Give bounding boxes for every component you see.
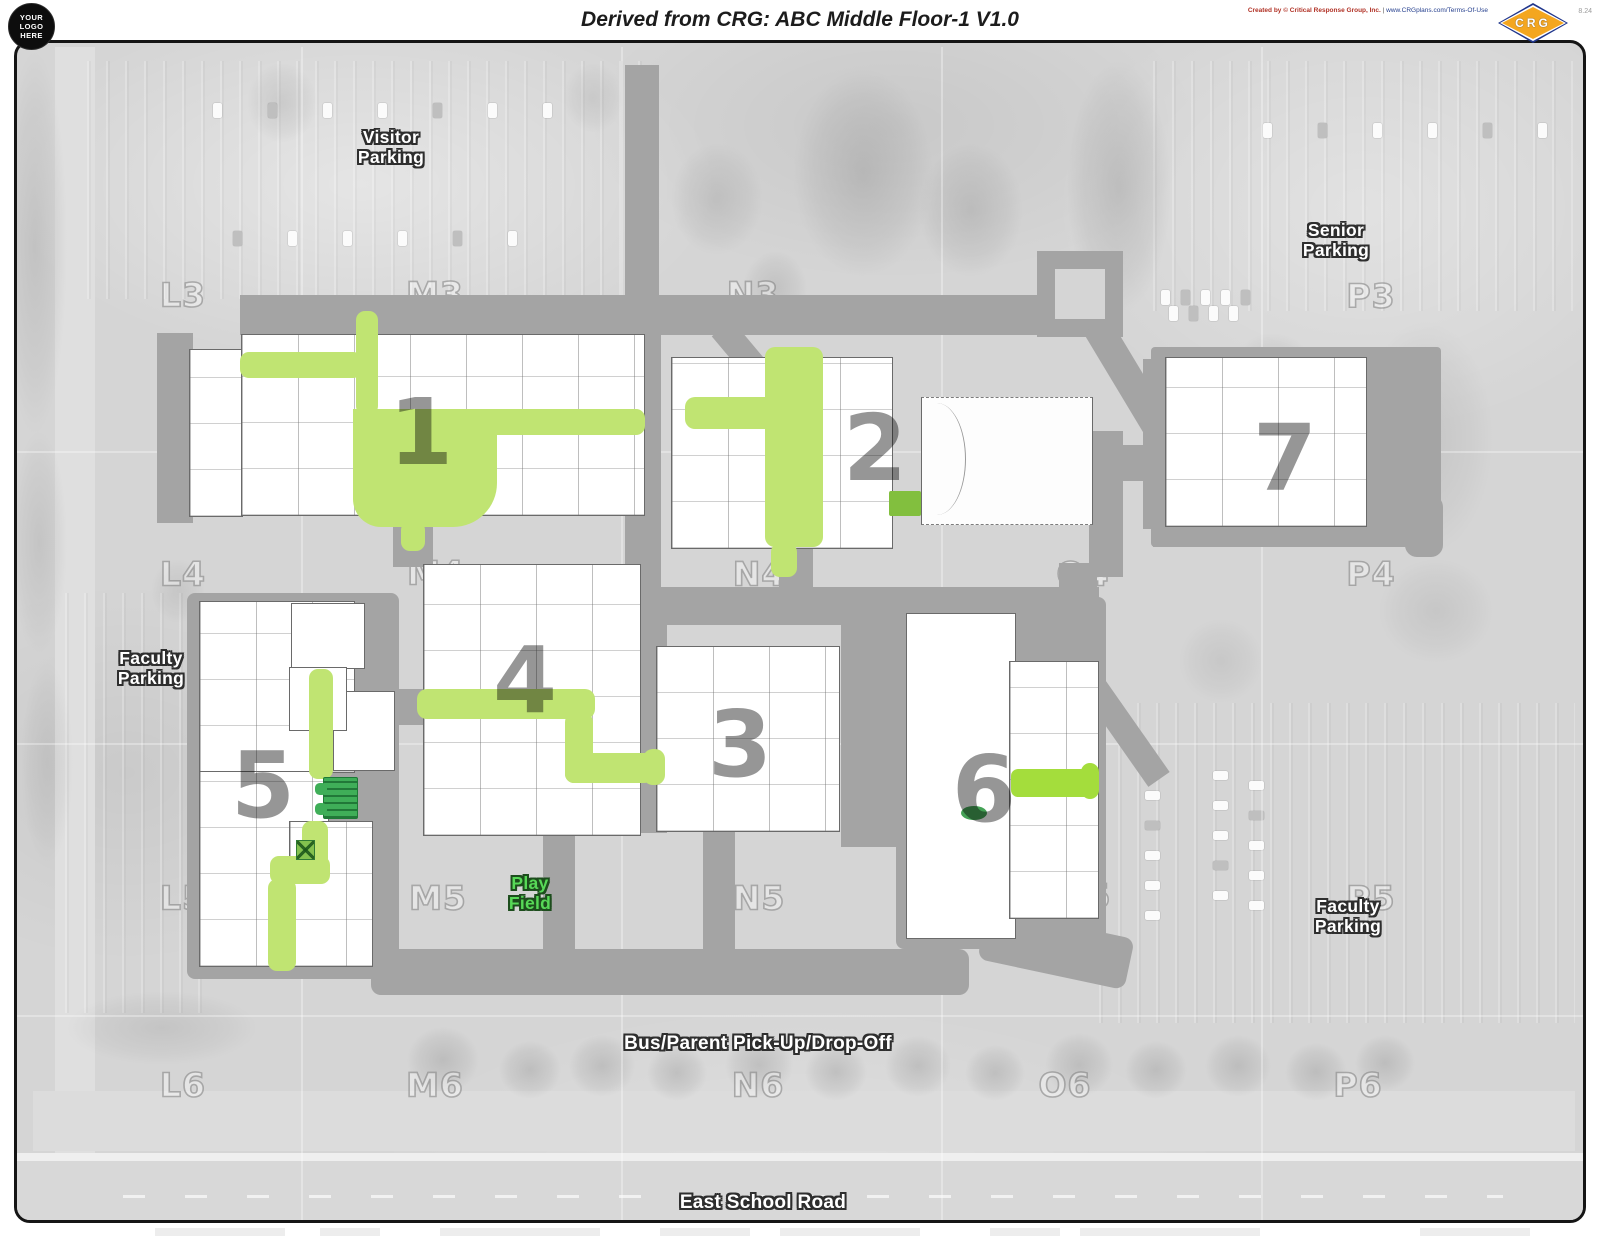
car: [1221, 290, 1230, 305]
senior-parking-line: Senior: [1303, 221, 1369, 241]
green-route: [401, 521, 425, 551]
cutoff-content-block: [320, 1228, 380, 1236]
green-route: [565, 753, 653, 783]
car: [1145, 911, 1160, 920]
crg-logo-icon: CRG: [1498, 3, 1568, 43]
grid-label-N5: N5: [733, 879, 786, 918]
play-field-line: Play: [509, 874, 551, 894]
green-route: [356, 311, 378, 415]
car: [1169, 306, 1178, 321]
cutoff-content-block: [990, 1228, 1060, 1236]
tree: [965, 1045, 1025, 1101]
corridor-segment: [625, 65, 659, 317]
logo-line: LOGO: [20, 22, 44, 31]
car: [1229, 306, 1238, 321]
stairs-landing: [315, 803, 327, 815]
visitor-parking: VisitorParking: [358, 128, 424, 168]
corridor-segment: [157, 333, 193, 523]
credit-terms-link[interactable]: www.CRGplans.com/Terms-Of-Use: [1386, 7, 1488, 14]
green-route: [268, 879, 296, 971]
parking-lot: [1099, 703, 1575, 1023]
car: [1189, 306, 1198, 321]
your-logo-placeholder-icon: YOUR LOGO HERE: [8, 3, 55, 50]
car: [1213, 861, 1228, 870]
cutoff-content-block: [155, 1228, 285, 1236]
header-bar: YOUR LOGO HERE Derived from CRG: ABC Mid…: [0, 0, 1600, 40]
logo-line: YOUR: [20, 13, 43, 22]
campus-map: L3M3N3O3P3L4M4N4O4P4L5M5N5O5P5L6M6N6O6P6…: [14, 40, 1586, 1223]
grid-label-P3: P3: [1346, 277, 1395, 316]
grid-label-O6: O6: [1038, 1066, 1091, 1105]
green-route: [309, 669, 333, 779]
building-5-label: 5: [231, 740, 295, 832]
play-field-line: Field: [509, 894, 551, 914]
faculty-parking-east-line: Parking: [1315, 917, 1381, 937]
credit-line: Created by © Critical Response Group, In…: [1248, 7, 1488, 14]
building-7-label: 7: [1253, 413, 1317, 505]
credit-created: Created by © Critical Response Group, In…: [1248, 7, 1381, 14]
tree: [919, 143, 1023, 277]
car: [1145, 851, 1160, 860]
grid-label-L4: L4: [160, 555, 206, 594]
car: [1213, 891, 1228, 900]
logo-line: HERE: [20, 31, 42, 40]
tree: [67, 991, 257, 1065]
green-route: [765, 347, 823, 547]
car: [1213, 831, 1228, 840]
car: [1161, 290, 1170, 305]
car: [1181, 290, 1190, 305]
tree: [21, 661, 73, 865]
faculty-parking-west-line: Parking: [118, 669, 184, 689]
tree: [499, 1041, 561, 1099]
grid-line: [17, 1015, 1586, 1017]
car: [1145, 791, 1160, 800]
car: [1428, 123, 1437, 138]
car: [268, 103, 277, 118]
tree: [793, 69, 933, 277]
grid-label-L3: L3: [160, 276, 206, 315]
car: [213, 103, 222, 118]
car: [398, 231, 407, 246]
building-outline: [291, 603, 365, 669]
cutoff-content-block: [780, 1228, 920, 1236]
stair-cross-icon: [296, 840, 315, 860]
page: { "header": { "logo": { "line1": "YOUR",…: [0, 0, 1600, 1237]
cutoff-content-block: [1420, 1228, 1530, 1236]
building-1-label: 1: [389, 387, 453, 479]
grid-label-P6: P6: [1333, 1066, 1382, 1105]
version-tag: 8.24: [1578, 8, 1592, 15]
bus-parent-pick-up-drop-off-line: Bus/Parent Pick-Up/Drop-Off: [624, 1033, 892, 1055]
tree: [247, 63, 317, 143]
car: [288, 231, 297, 246]
cutoff-content-block: [440, 1228, 600, 1236]
green-route: [240, 352, 362, 378]
grid-label-M5: M5: [409, 879, 467, 918]
stairs-landing: [315, 783, 327, 795]
grid-line: [1261, 47, 1263, 1223]
car: [1145, 821, 1160, 830]
cutoff-content-block: [1080, 1228, 1260, 1236]
car: [343, 231, 352, 246]
senior-parking-line: Parking: [1303, 241, 1369, 261]
car: [543, 103, 552, 118]
play-field: PlayField: [509, 874, 551, 914]
building-4-label: 4: [493, 635, 557, 727]
building-outline: [189, 349, 243, 517]
courtyard-opening: [1055, 269, 1105, 319]
crg-logo-text: CRG: [1498, 3, 1568, 43]
car: [1201, 290, 1210, 305]
car: [488, 103, 497, 118]
grid-label-P4: P4: [1346, 555, 1395, 594]
car: [1373, 123, 1382, 138]
bus-parent-pick-up-drop-off: Bus/Parent Pick-Up/Drop-Off: [624, 1033, 892, 1055]
grid-label-M6: M6: [406, 1066, 464, 1105]
tree: [14, 431, 67, 655]
car: [453, 231, 462, 246]
car: [323, 103, 332, 118]
car: [1263, 123, 1272, 138]
car: [1213, 801, 1228, 810]
car: [508, 231, 517, 246]
tree: [563, 63, 623, 133]
grid-label-N6: N6: [732, 1066, 785, 1105]
green-route: [685, 397, 815, 429]
faculty-parking-west-line: Faculty: [118, 649, 184, 669]
car: [1145, 881, 1160, 890]
visitor-parking-line: Visitor: [358, 128, 424, 148]
parking-lot: [1153, 61, 1573, 311]
grid-label-L6: L6: [160, 1066, 206, 1105]
tree: [671, 143, 763, 255]
visitor-parking-line: Parking: [358, 148, 424, 168]
tree: [1179, 619, 1263, 703]
car: [1209, 306, 1218, 321]
car: [1483, 123, 1492, 138]
car: [378, 103, 387, 118]
green-route: [643, 749, 665, 785]
corridor-segment: [703, 827, 735, 953]
corridor-segment: [371, 949, 969, 995]
building-2-label: 2: [843, 403, 907, 495]
tree: [1379, 559, 1493, 663]
page-title: Derived from CRG: ABC Middle Floor-1 V1.…: [581, 8, 1019, 32]
stairs-icon: [323, 777, 358, 819]
building-6-label: 6: [952, 744, 1016, 836]
faculty-parking-west: FacultyParking: [118, 649, 184, 689]
car: [1213, 771, 1228, 780]
car: [1318, 123, 1327, 138]
green-route: [771, 543, 797, 577]
car: [433, 103, 442, 118]
east-school-road: East School Road: [680, 1192, 846, 1214]
green-route: [481, 409, 645, 435]
car: [233, 231, 242, 246]
tree: [1125, 1041, 1187, 1099]
faculty-parking-east-line: Faculty: [1315, 897, 1381, 917]
road: [17, 1153, 1586, 1161]
car: [1538, 123, 1547, 138]
east-school-road-line: East School Road: [680, 1192, 846, 1214]
green-route: [1081, 763, 1099, 799]
cutoff-content-block: [660, 1228, 750, 1236]
car: [1241, 290, 1250, 305]
faculty-parking-east: FacultyParking: [1315, 897, 1381, 937]
building-3-label: 3: [708, 699, 772, 791]
senior-parking: SeniorParking: [1303, 221, 1369, 261]
